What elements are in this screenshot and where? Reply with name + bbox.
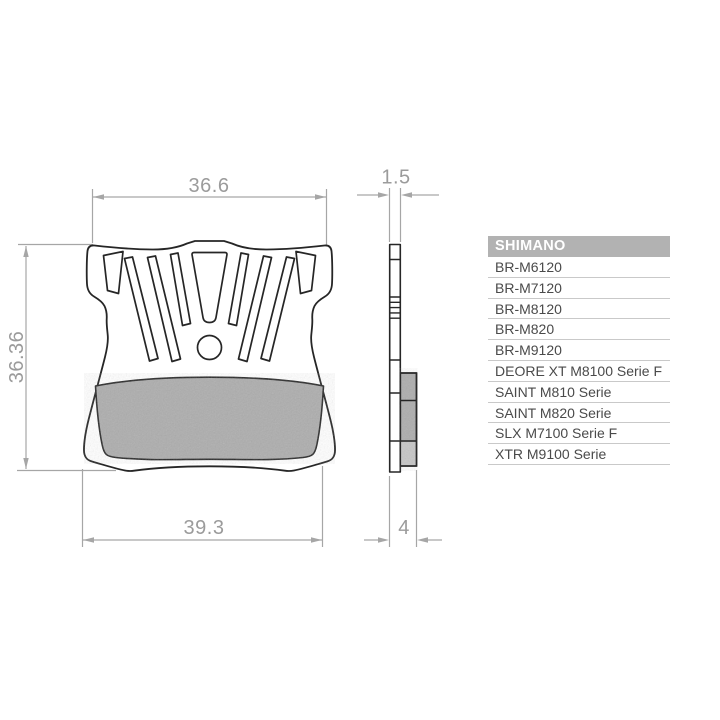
backplate-side (390, 245, 401, 473)
table-row: BR-M8120 (488, 299, 670, 320)
dim-label-bottom-width: 39.3 (184, 517, 225, 539)
arrowhead-left-icon (417, 537, 428, 542)
dimension-bottom-width: 39.3 (83, 466, 323, 547)
table-row: XTR M9100 Serie (488, 444, 670, 465)
dimension-plate-thickness: 1.5 (357, 167, 439, 243)
arrowhead-right-icon (378, 192, 389, 197)
center-hole (198, 336, 222, 360)
dim-label-total-thickness: 4 (398, 517, 410, 539)
table-row: SAINT M820 Serie (488, 403, 670, 424)
table-row: SAINT M810 Serie (488, 382, 670, 403)
compatibility-table: SHIMANO BR-M6120BR-M7120BR-M8120BR-M820B… (488, 236, 670, 465)
table-header-shimano: SHIMANO (488, 236, 670, 257)
dimension-top-width: 36.6 (93, 175, 327, 251)
table-rows: BR-M6120BR-M7120BR-M8120BR-M820BR-M9120D… (488, 257, 670, 465)
table-row: DEORE XT M8100 Serie F (488, 361, 670, 382)
arrowhead-left-icon (93, 194, 104, 199)
dimension-total-thickness: 4 (364, 470, 442, 547)
friction-material-texture (96, 377, 324, 459)
pad-front-view (84, 241, 335, 471)
dim-label-height: 36.36 (6, 331, 28, 384)
arrowhead-left-icon (401, 192, 412, 197)
friction-material-side-texture (400, 373, 416, 466)
arrowhead-left-icon (83, 537, 94, 542)
table-row: BR-M820 (488, 319, 670, 340)
table-row: BR-M7120 (488, 278, 670, 299)
table-row: BR-M9120 (488, 340, 670, 361)
arrowhead-right-icon (311, 537, 322, 542)
table-row: SLX M7100 Serie F (488, 423, 670, 444)
dim-label-plate-thickness: 1.5 (381, 167, 410, 189)
arrowhead-right-icon (315, 194, 326, 199)
arrowhead-down-icon (23, 458, 28, 469)
table-row: BR-M6120 (488, 257, 670, 278)
arrowhead-up-icon (23, 246, 28, 257)
pad-side-view (390, 245, 417, 473)
brake-pad-spec-page: 36.6 1.5 36.36 39.3 (0, 0, 720, 720)
dim-label-top-width: 36.6 (189, 175, 230, 197)
arrowhead-right-icon (378, 537, 389, 542)
